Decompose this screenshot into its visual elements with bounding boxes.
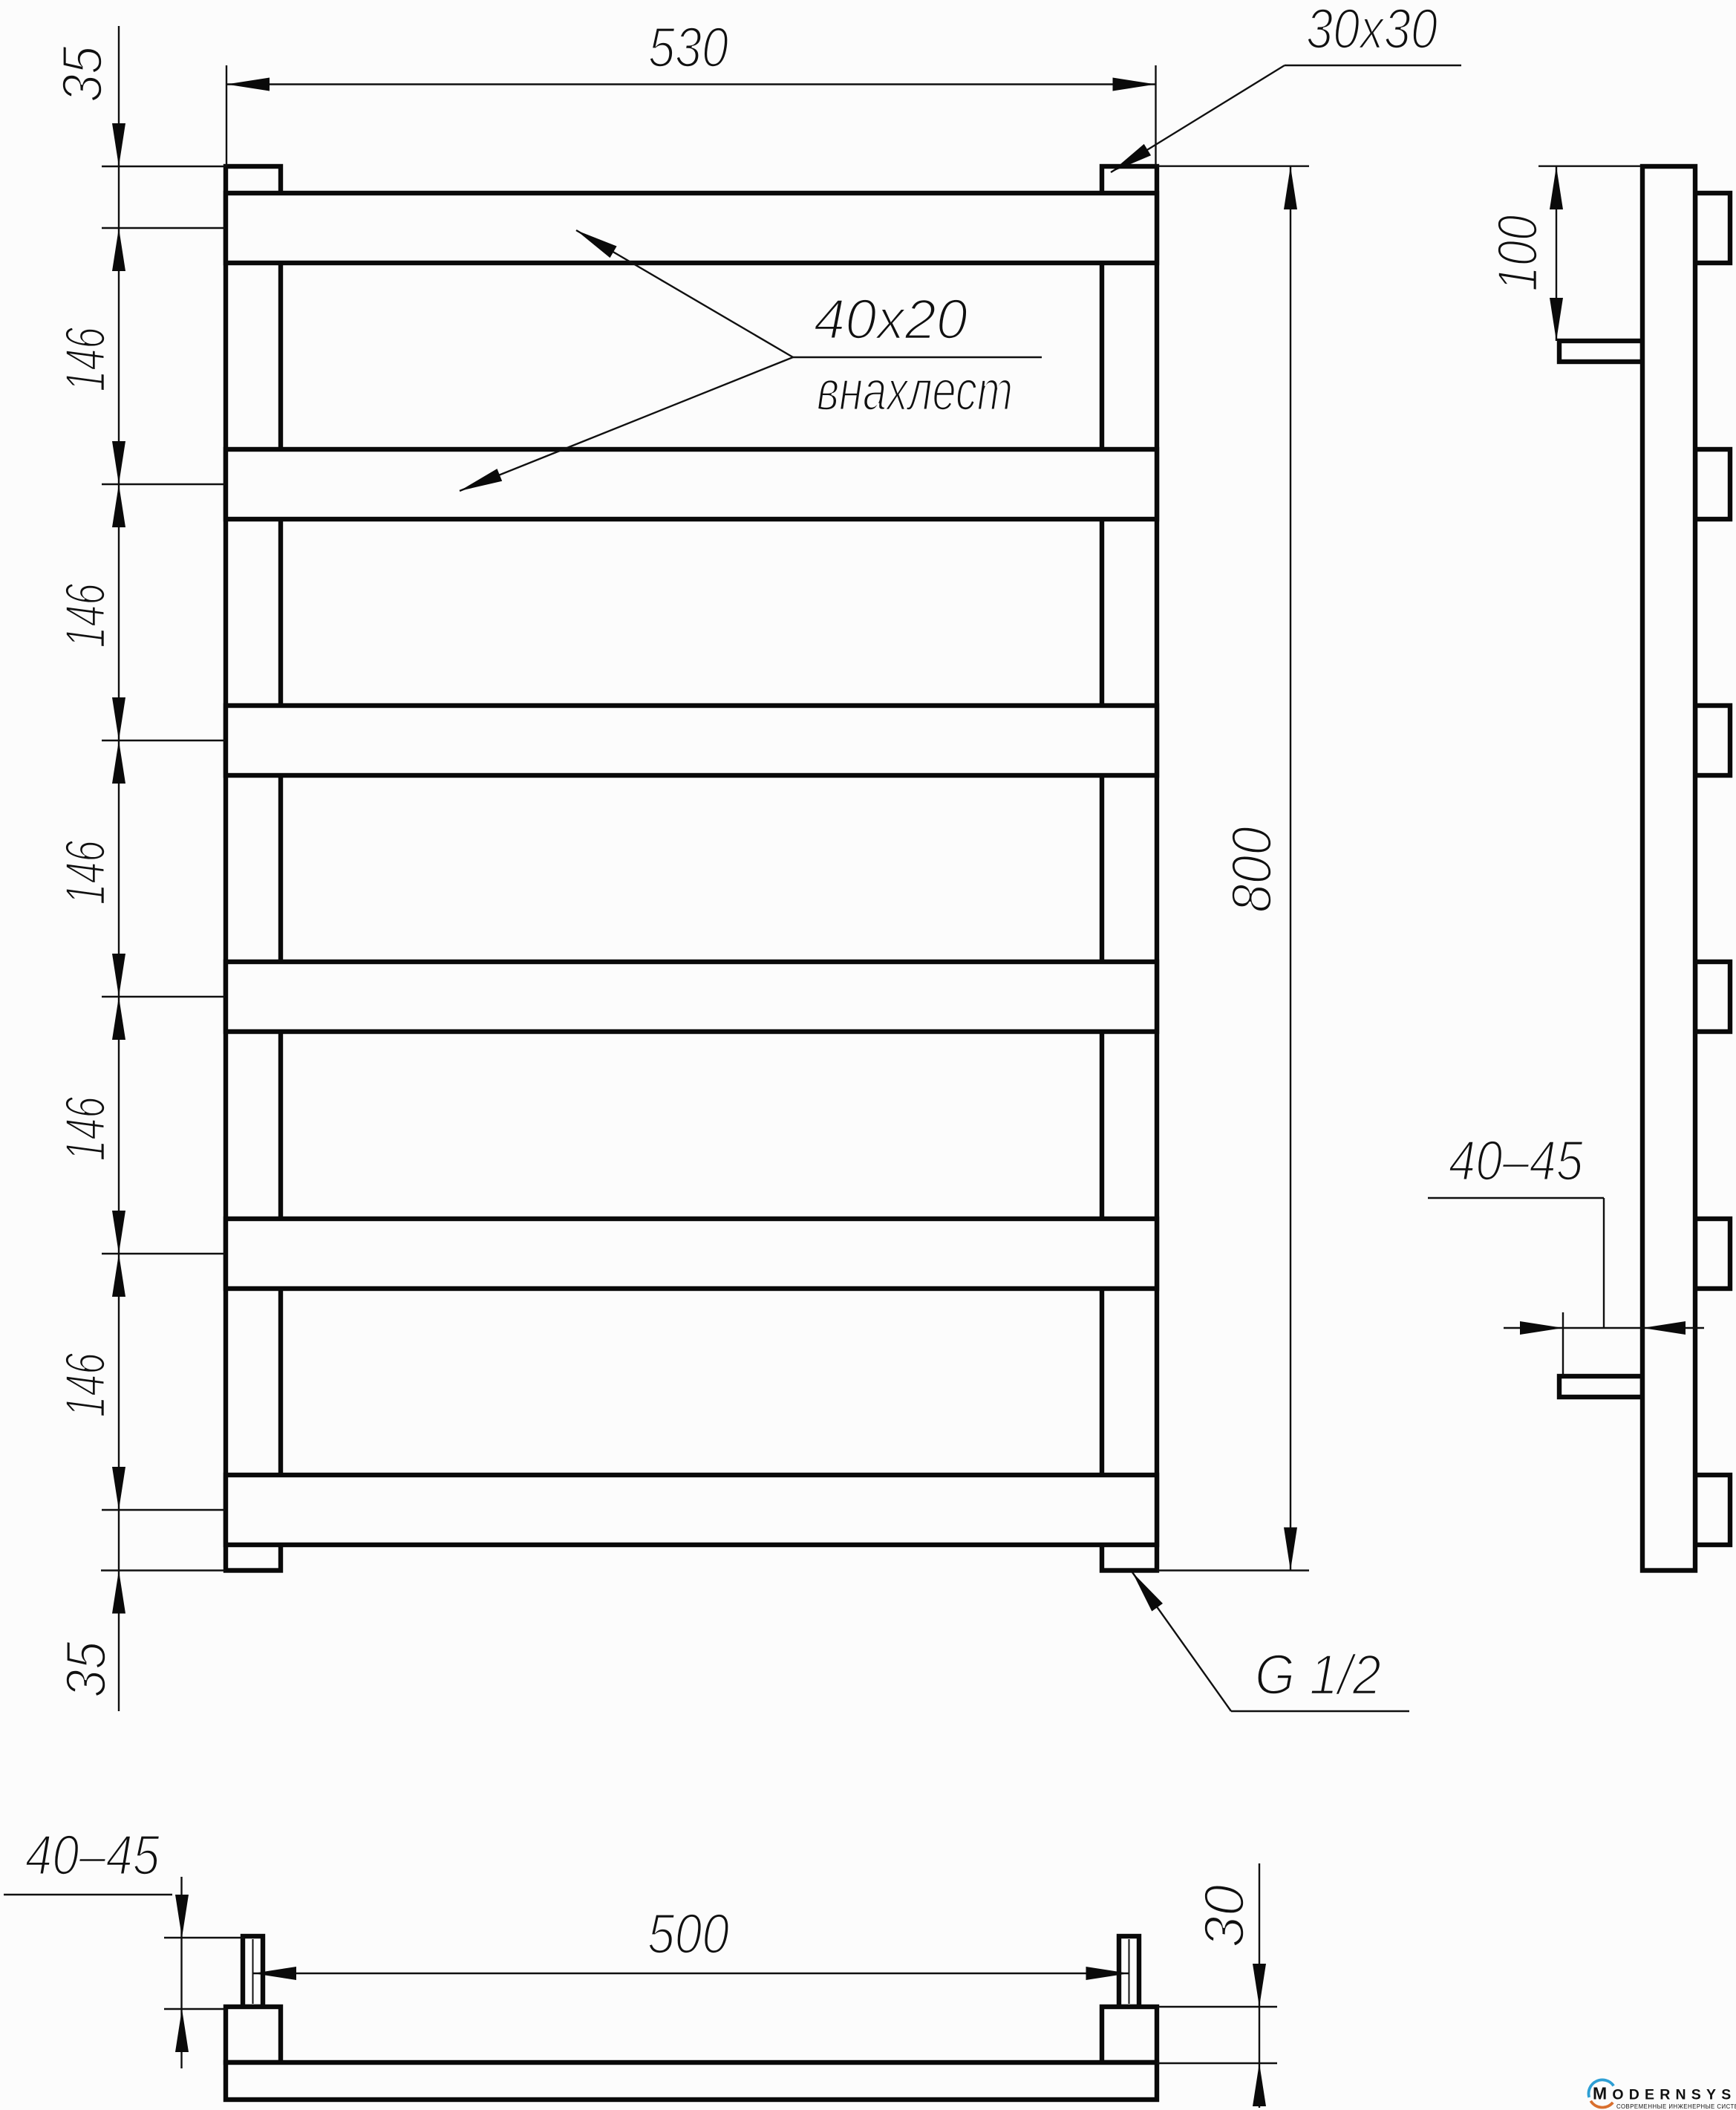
svg-text:146: 146 <box>54 1352 117 1417</box>
svg-text:35: 35 <box>55 1641 118 1698</box>
svg-text:146: 146 <box>54 583 117 648</box>
svg-text:500: 500 <box>647 1903 729 1966</box>
svg-text:530: 530 <box>648 16 728 79</box>
svg-text:G 1/2: G 1/2 <box>1255 1644 1381 1707</box>
svg-text:146: 146 <box>54 840 117 905</box>
svg-text:146: 146 <box>54 1096 117 1161</box>
svg-text:35: 35 <box>51 45 114 102</box>
svg-text:40–45: 40–45 <box>25 1824 160 1887</box>
svg-text:30: 30 <box>1193 1885 1256 1948</box>
svg-text:внахлест: внахлест <box>817 359 1013 423</box>
svg-text:MODERNSYS: MODERNSYS <box>1593 2084 1736 2103</box>
svg-text:40x20: 40x20 <box>814 288 967 351</box>
svg-text:100: 100 <box>1487 215 1550 292</box>
svg-text:30x30: 30x30 <box>1306 0 1438 61</box>
svg-text:СОВРЕМЕННЫЕ ИНЖЕНЕРНЫЕ СИСТЕМЫ: СОВРЕМЕННЫЕ ИНЖЕНЕРНЫЕ СИСТЕМЫ <box>1616 2103 1736 2110</box>
svg-text:146: 146 <box>54 327 117 391</box>
svg-text:40–45: 40–45 <box>1449 1130 1584 1193</box>
svg-text:800: 800 <box>1221 827 1284 913</box>
